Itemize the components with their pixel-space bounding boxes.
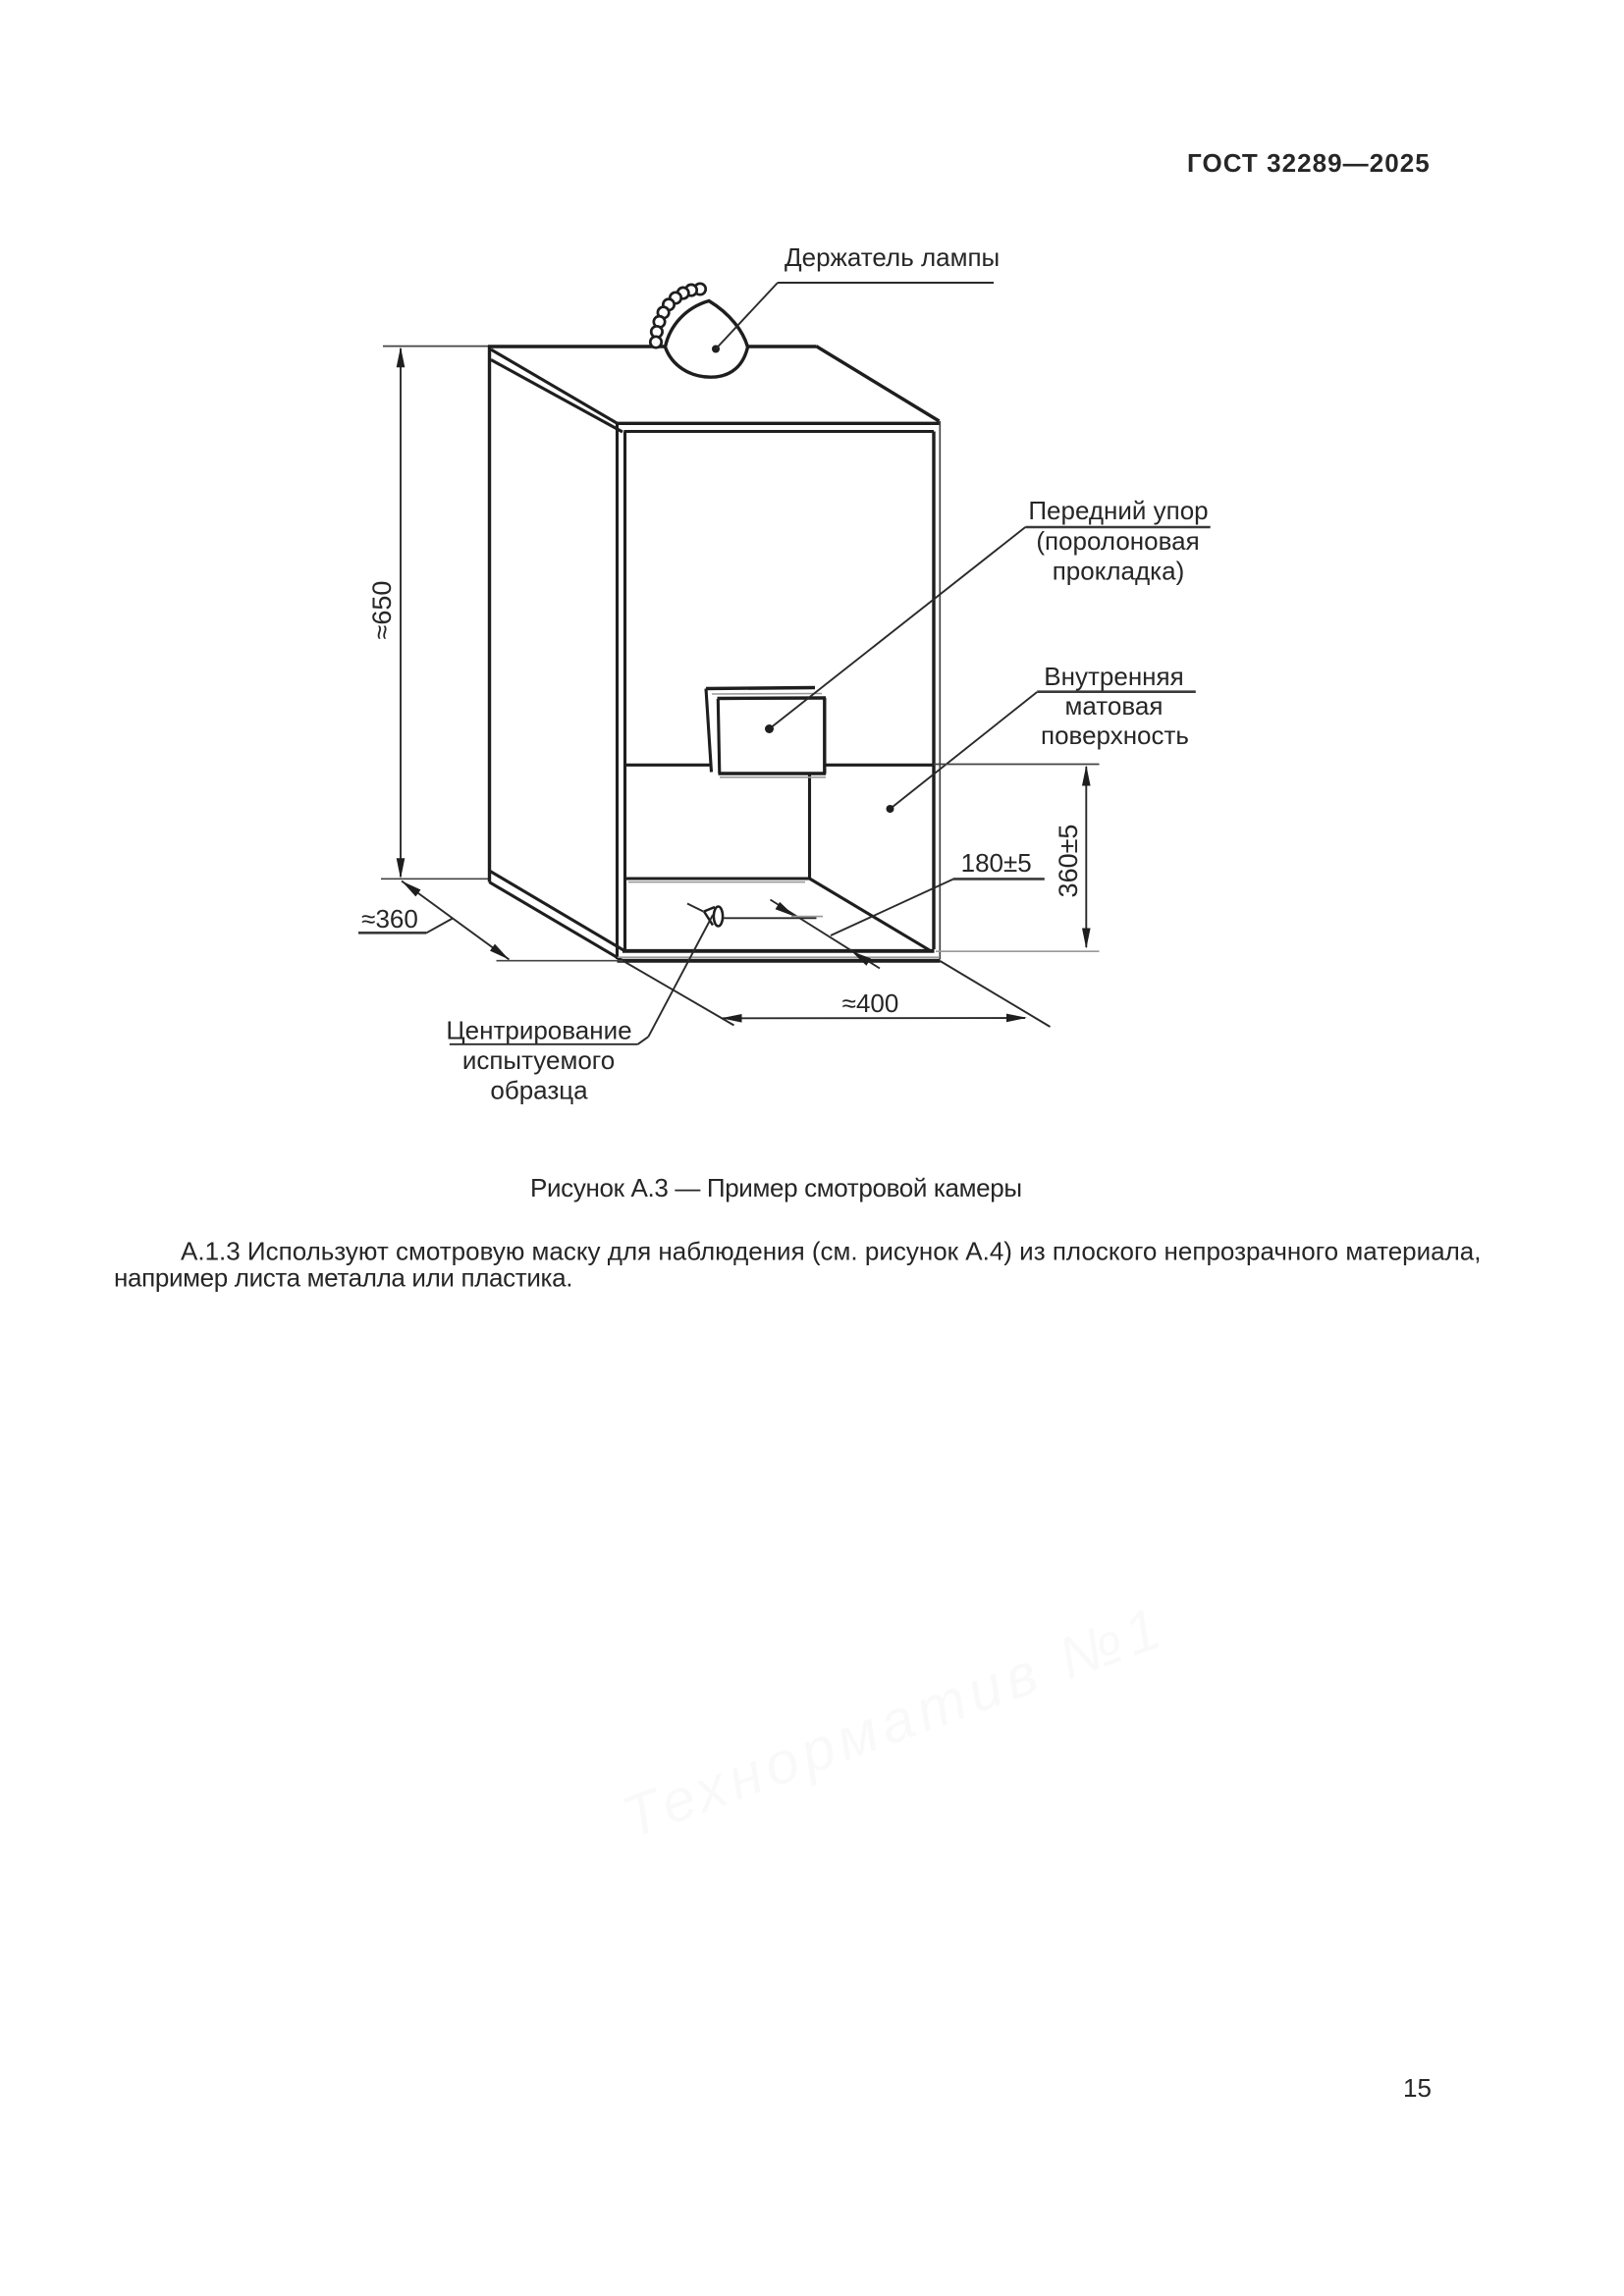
svg-text:Держатель лампы: Держатель лампы: [785, 242, 1000, 272]
svg-text:Технорматив №1: Технорматив №1: [614, 1593, 1173, 1850]
svg-text:≈400: ≈400: [842, 988, 899, 1018]
svg-text:Рисунок А.3 — Пример смотровой: Рисунок А.3 — Пример смотровой камеры: [530, 1173, 1022, 1202]
svg-text:Передний упор: Передний упор: [1028, 496, 1208, 525]
svg-text:Центрирование: Центрирование: [446, 1016, 631, 1045]
svg-text:(поролоновая: (поролоновая: [1036, 526, 1199, 556]
svg-text:поверхность: поверхность: [1041, 721, 1189, 750]
svg-text:например листа металла или пла: например листа металла или пластика.: [114, 1263, 572, 1293]
svg-text:А.1.3 Используют смотровую мас: А.1.3 Используют смотровую маску для наб…: [181, 1237, 1481, 1266]
svg-text:Внутренняя: Внутренняя: [1044, 662, 1183, 691]
svg-text:ГОСТ 32289—2025: ГОСТ 32289—2025: [1187, 148, 1431, 178]
svg-text:180±5: 180±5: [961, 848, 1032, 878]
svg-text:матовая: матовая: [1065, 691, 1164, 721]
svg-text:≈650: ≈650: [367, 581, 397, 640]
svg-text:образца: образца: [490, 1076, 588, 1105]
svg-text:прокладка): прокладка): [1053, 557, 1185, 586]
svg-text:360±5: 360±5: [1054, 825, 1083, 898]
svg-text:15: 15: [1403, 2073, 1432, 2103]
svg-text:≈360: ≈360: [361, 904, 418, 934]
svg-text:испытуемого: испытуемого: [462, 1045, 615, 1075]
